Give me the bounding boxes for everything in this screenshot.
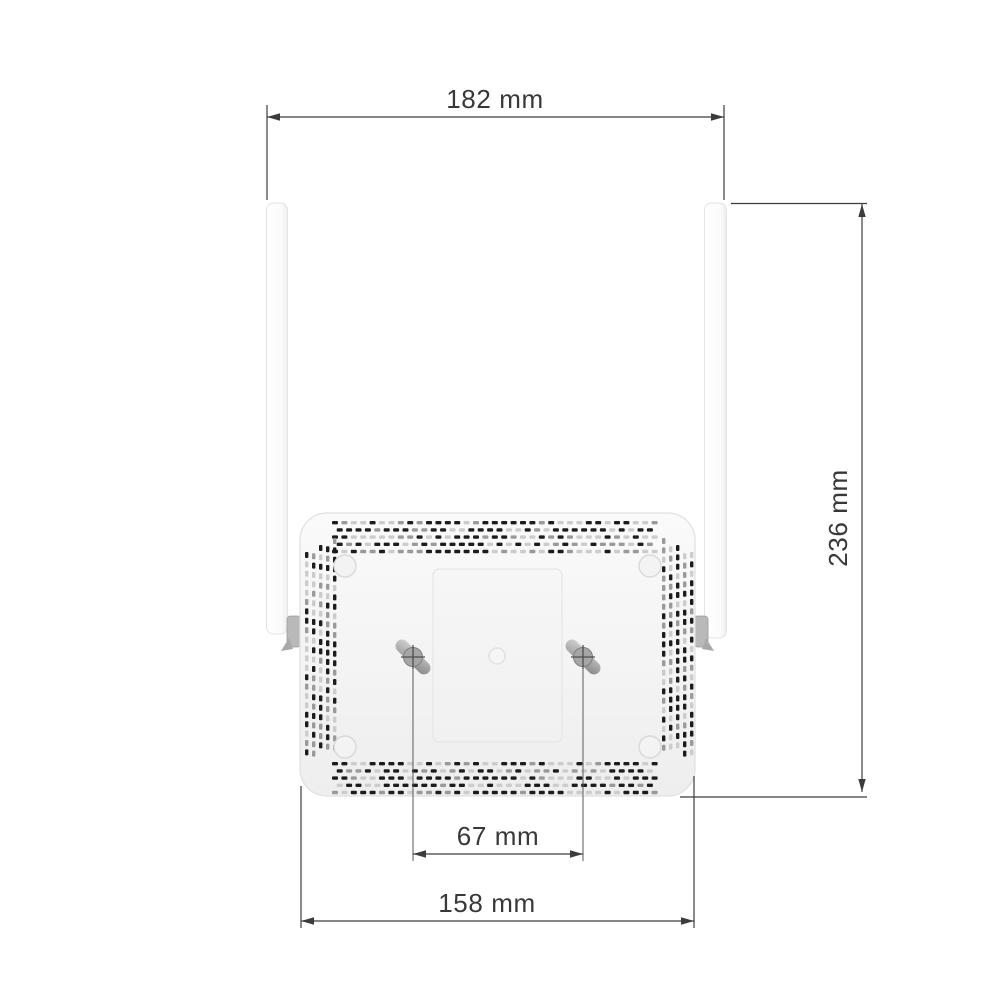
vent-dash bbox=[450, 528, 456, 531]
vent-dash bbox=[487, 528, 493, 531]
vent-dash bbox=[333, 660, 336, 666]
vent-dash bbox=[312, 666, 315, 672]
vent-dash bbox=[662, 670, 665, 676]
dim-label-mount-hole-spacing: 67 mm bbox=[457, 821, 539, 851]
vent-dash bbox=[326, 621, 329, 627]
right-antenna bbox=[705, 203, 727, 638]
vent-dash bbox=[482, 521, 488, 524]
vent-dash bbox=[586, 791, 592, 794]
vent-dash bbox=[326, 659, 329, 665]
vent-dash bbox=[506, 784, 512, 787]
vent-dash bbox=[333, 707, 336, 713]
vent-dash bbox=[647, 784, 653, 787]
vent-dash bbox=[662, 585, 665, 591]
vent-dash bbox=[572, 769, 578, 772]
vent-dash bbox=[683, 610, 686, 616]
vent-dash bbox=[341, 762, 347, 765]
vent-dash bbox=[319, 648, 322, 654]
arrowhead-left bbox=[267, 113, 280, 120]
vent-dash bbox=[642, 550, 648, 553]
vent-dash bbox=[591, 543, 597, 546]
vent-dash bbox=[662, 547, 665, 553]
vent-dash bbox=[440, 528, 446, 531]
vent-dash bbox=[642, 791, 648, 794]
vent-dash bbox=[576, 791, 582, 794]
vent-dash bbox=[690, 580, 693, 586]
vent-dash bbox=[305, 712, 308, 718]
vent-dash bbox=[305, 731, 308, 737]
vent-dash bbox=[633, 762, 639, 765]
vent-dash bbox=[605, 535, 611, 538]
vent-dash bbox=[426, 535, 432, 538]
vent-dash bbox=[333, 670, 336, 676]
vent-dash bbox=[511, 521, 517, 524]
vent-dash bbox=[690, 702, 693, 708]
vent-dash bbox=[515, 543, 521, 546]
vent-dash bbox=[638, 528, 644, 531]
vent-dash bbox=[647, 543, 653, 546]
vent-dash bbox=[473, 535, 479, 538]
dim-label-device-height: 236 mm bbox=[823, 469, 853, 567]
vent-dash bbox=[683, 713, 686, 719]
vent-dash bbox=[690, 684, 693, 690]
vent-dash bbox=[633, 521, 639, 524]
vent-dash bbox=[690, 731, 693, 737]
vent-dash bbox=[628, 769, 634, 772]
vent-dash bbox=[388, 791, 394, 794]
vent-dash bbox=[562, 543, 568, 546]
vent-dash bbox=[305, 702, 308, 708]
vent-dash bbox=[539, 791, 545, 794]
vent-dash bbox=[445, 791, 451, 794]
vent-dash bbox=[576, 521, 582, 524]
vent-dash bbox=[356, 769, 362, 772]
vent-dash bbox=[333, 604, 336, 610]
vent-dash bbox=[567, 535, 573, 538]
vent-dash bbox=[676, 705, 679, 711]
vent-dash bbox=[365, 784, 371, 787]
vent-dash bbox=[426, 521, 432, 524]
vent-dash bbox=[468, 769, 474, 772]
vent-dash bbox=[652, 776, 658, 779]
vent-dash bbox=[642, 535, 648, 538]
vent-dash bbox=[398, 521, 404, 524]
vent-dash bbox=[662, 604, 665, 610]
vent-dash bbox=[333, 576, 336, 582]
vent-dash bbox=[478, 784, 484, 787]
vent-dash bbox=[407, 791, 413, 794]
vent-dash bbox=[609, 528, 615, 531]
vent-dash bbox=[520, 762, 526, 765]
vent-dash bbox=[690, 608, 693, 614]
vent-dash bbox=[388, 535, 394, 538]
vent-dash bbox=[690, 561, 693, 567]
vent-dash bbox=[669, 744, 672, 750]
vent-dash bbox=[501, 521, 507, 524]
vent-dash bbox=[351, 550, 357, 553]
vent-dash bbox=[683, 581, 686, 587]
vent-dash bbox=[595, 550, 601, 553]
vent-dash bbox=[567, 762, 573, 765]
vent-dash bbox=[676, 545, 679, 551]
vent-dash bbox=[633, 791, 639, 794]
vent-dash bbox=[558, 776, 564, 779]
vent-dash bbox=[501, 776, 507, 779]
vent-dash bbox=[683, 751, 686, 757]
vent-dash bbox=[312, 581, 315, 587]
vent-dash bbox=[426, 550, 432, 553]
vent-dash bbox=[393, 784, 399, 787]
vent-dash bbox=[623, 776, 629, 779]
vent-dash bbox=[492, 791, 498, 794]
vent-dash bbox=[445, 550, 451, 553]
vent-dash bbox=[558, 762, 564, 765]
vent-dash bbox=[319, 564, 322, 570]
vent-dash bbox=[370, 550, 376, 553]
vent-dash bbox=[421, 769, 427, 772]
vent-dash bbox=[332, 791, 338, 794]
vent-dash bbox=[669, 706, 672, 712]
vent-dash bbox=[529, 776, 535, 779]
vent-dash bbox=[662, 679, 665, 685]
vent-dash bbox=[326, 574, 329, 580]
vent-dash bbox=[662, 698, 665, 704]
vent-dash bbox=[341, 521, 347, 524]
vent-dash bbox=[662, 660, 665, 666]
vent-dash bbox=[326, 725, 329, 731]
vent-dash bbox=[412, 528, 418, 531]
vent-dash bbox=[305, 665, 308, 671]
vent-dash bbox=[623, 521, 629, 524]
vent-dash bbox=[319, 742, 322, 748]
vent-dash bbox=[326, 565, 329, 571]
vent-dash bbox=[435, 762, 441, 765]
vent-dash bbox=[337, 784, 343, 787]
vent-dash bbox=[326, 678, 329, 684]
vent-dash bbox=[370, 521, 376, 524]
vent-dash bbox=[662, 613, 665, 619]
vent-dash bbox=[669, 631, 672, 637]
vent-dash bbox=[312, 647, 315, 653]
vent-dash bbox=[407, 535, 413, 538]
vent-dash bbox=[459, 784, 465, 787]
vent-dash bbox=[333, 726, 336, 732]
rubber-foot-top-right bbox=[639, 555, 661, 577]
vent-dash bbox=[676, 724, 679, 730]
dim-label-antenna-span: 182 mm bbox=[446, 84, 544, 114]
vent-dash bbox=[351, 791, 357, 794]
vent-dash bbox=[407, 521, 413, 524]
vent-dash bbox=[450, 769, 456, 772]
vent-dash bbox=[567, 521, 573, 524]
vent-dash bbox=[683, 685, 686, 691]
vent-dash bbox=[312, 741, 315, 747]
vent-dash bbox=[426, 776, 432, 779]
vent-dash bbox=[647, 769, 653, 772]
vent-dash bbox=[619, 543, 625, 546]
vent-dash bbox=[333, 538, 336, 544]
vent-dash bbox=[595, 535, 601, 538]
vent-dash bbox=[520, 791, 526, 794]
vent-dash bbox=[319, 601, 322, 607]
vent-dash bbox=[676, 573, 679, 579]
vent-dash bbox=[360, 776, 366, 779]
vent-dash bbox=[581, 769, 587, 772]
vent-dash bbox=[459, 769, 465, 772]
vent-dash bbox=[501, 762, 507, 765]
vent-dash bbox=[652, 550, 658, 553]
vent-dash bbox=[365, 543, 371, 546]
vent-dash bbox=[312, 563, 315, 569]
vent-dash bbox=[511, 776, 517, 779]
vent-dash bbox=[683, 675, 686, 681]
vent-dash bbox=[520, 776, 526, 779]
vent-dash bbox=[379, 521, 385, 524]
vent-dash bbox=[623, 535, 629, 538]
vent-dash bbox=[683, 638, 686, 644]
arrowhead-bottom bbox=[858, 779, 865, 792]
vent-dash bbox=[572, 543, 578, 546]
vent-dash bbox=[305, 693, 308, 699]
vent-dash bbox=[305, 740, 308, 746]
vent-dash bbox=[619, 769, 625, 772]
vent-dash bbox=[473, 521, 479, 524]
vent-dash bbox=[676, 583, 679, 589]
vent-dash bbox=[312, 751, 315, 757]
vent-dash bbox=[548, 535, 554, 538]
vent-dash bbox=[669, 678, 672, 684]
vent-dash bbox=[370, 791, 376, 794]
arrowhead-right bbox=[681, 917, 694, 924]
vent-dash bbox=[326, 584, 329, 590]
vent-dash bbox=[652, 762, 658, 765]
vent-dash bbox=[421, 528, 427, 531]
vent-dash bbox=[398, 535, 404, 538]
vent-dash bbox=[525, 543, 531, 546]
vent-dash bbox=[662, 735, 665, 741]
diagram-canvas: 182 mm 236 mm 67 mm 158 mm bbox=[0, 0, 1000, 1000]
vent-dash bbox=[591, 769, 597, 772]
vent-dash bbox=[529, 791, 535, 794]
vent-dash bbox=[642, 762, 648, 765]
vent-dash bbox=[379, 550, 385, 553]
vent-dash bbox=[638, 784, 644, 787]
vent-dash bbox=[403, 543, 409, 546]
vent-dash bbox=[319, 639, 322, 645]
vent-dash bbox=[487, 784, 493, 787]
vent-dash bbox=[683, 722, 686, 728]
vent-dash bbox=[669, 640, 672, 646]
vent-dash bbox=[370, 762, 376, 765]
vent-dash bbox=[337, 543, 343, 546]
vent-dash bbox=[319, 705, 322, 711]
vent-dash bbox=[356, 784, 362, 787]
vent-dash bbox=[312, 704, 315, 710]
vent-dash bbox=[459, 528, 465, 531]
vent-dash bbox=[454, 521, 460, 524]
vent-dash bbox=[529, 535, 535, 538]
vent-dash bbox=[638, 769, 644, 772]
vent-dash bbox=[515, 769, 521, 772]
vent-dash bbox=[337, 769, 343, 772]
vent-dash bbox=[305, 590, 308, 596]
vent-dash bbox=[647, 528, 653, 531]
vent-dash bbox=[454, 791, 460, 794]
vent-dash bbox=[511, 791, 517, 794]
vent-dash bbox=[360, 521, 366, 524]
vent-dash bbox=[319, 714, 322, 720]
vent-dash bbox=[326, 687, 329, 693]
vent-dash bbox=[683, 666, 686, 672]
vent-dash bbox=[326, 546, 329, 552]
vent-dash bbox=[595, 762, 601, 765]
vent-dash bbox=[374, 528, 380, 531]
vent-dash bbox=[669, 697, 672, 703]
vent-dash bbox=[690, 637, 693, 643]
vent-dash bbox=[683, 619, 686, 625]
vent-dash bbox=[312, 685, 315, 691]
vent-dash bbox=[305, 646, 308, 652]
vent-dash bbox=[333, 613, 336, 619]
vent-dash bbox=[398, 762, 404, 765]
vent-dash bbox=[595, 791, 601, 794]
vent-dash bbox=[548, 791, 554, 794]
vent-dash bbox=[360, 550, 366, 553]
vent-dash bbox=[440, 543, 446, 546]
vent-dash bbox=[435, 776, 441, 779]
vent-dash bbox=[642, 521, 648, 524]
vent-dash bbox=[683, 694, 686, 700]
vent-dash bbox=[417, 776, 423, 779]
arrowhead-top bbox=[858, 204, 865, 217]
vent-dash bbox=[683, 600, 686, 606]
vent-dash bbox=[539, 776, 545, 779]
vent-dash bbox=[407, 762, 413, 765]
vent-dash bbox=[567, 791, 573, 794]
vent-dash bbox=[351, 776, 357, 779]
vent-dash bbox=[553, 543, 559, 546]
vent-dash bbox=[676, 639, 679, 645]
vent-dash bbox=[445, 535, 451, 538]
vent-dash bbox=[669, 668, 672, 674]
vent-dash bbox=[669, 546, 672, 552]
vent-dash bbox=[459, 543, 465, 546]
vent-dash bbox=[326, 744, 329, 750]
vent-dash bbox=[497, 784, 503, 787]
vent-dash bbox=[468, 784, 474, 787]
vent-dash bbox=[662, 688, 665, 694]
vent-dash bbox=[305, 552, 308, 558]
vent-dash bbox=[426, 791, 432, 794]
vent-dash bbox=[600, 784, 606, 787]
vent-dash bbox=[605, 762, 611, 765]
vent-dash bbox=[398, 791, 404, 794]
vent-dash bbox=[326, 556, 329, 562]
vent-dash bbox=[520, 550, 526, 553]
vent-dash bbox=[333, 688, 336, 694]
vent-dash bbox=[374, 769, 380, 772]
vent-dash bbox=[473, 762, 479, 765]
vent-dash bbox=[421, 543, 427, 546]
vent-dash bbox=[478, 528, 484, 531]
vent-dash bbox=[511, 762, 517, 765]
vent-dash bbox=[652, 521, 658, 524]
vent-dash bbox=[305, 608, 308, 614]
vent-dash bbox=[544, 769, 550, 772]
vent-dash bbox=[690, 674, 693, 680]
vent-dash bbox=[351, 521, 357, 524]
vent-dash bbox=[690, 665, 693, 671]
vent-dash bbox=[669, 556, 672, 562]
vent-dash bbox=[515, 528, 521, 531]
dimension-mount-hole-spacing: 67 mm bbox=[413, 821, 583, 858]
vent-dash bbox=[614, 762, 620, 765]
vent-dash bbox=[445, 521, 451, 524]
vent-dash bbox=[690, 590, 693, 596]
vent-dash bbox=[558, 521, 564, 524]
vent-dash bbox=[669, 621, 672, 627]
vent-dash bbox=[312, 713, 315, 719]
vent-dash bbox=[333, 698, 336, 704]
vent-dash bbox=[417, 762, 423, 765]
vent-dash bbox=[576, 776, 582, 779]
vent-dash bbox=[548, 521, 554, 524]
vent-dash bbox=[683, 657, 686, 663]
vent-dash bbox=[676, 695, 679, 701]
vent-dash bbox=[312, 638, 315, 644]
vent-dash bbox=[384, 543, 390, 546]
vent-dash bbox=[487, 769, 493, 772]
vent-dash bbox=[332, 776, 338, 779]
vent-dash bbox=[539, 550, 545, 553]
vent-dash bbox=[360, 791, 366, 794]
vent-dash bbox=[586, 550, 592, 553]
vent-dash bbox=[683, 628, 686, 634]
vent-dash bbox=[412, 543, 418, 546]
vent-dash bbox=[662, 557, 665, 563]
vent-dash bbox=[683, 591, 686, 597]
vent-dash bbox=[398, 550, 404, 553]
vent-dash bbox=[333, 641, 336, 647]
vent-dash bbox=[351, 762, 357, 765]
left-antenna bbox=[267, 203, 288, 634]
vent-dash bbox=[669, 565, 672, 571]
vent-dash bbox=[690, 712, 693, 718]
vent-dash bbox=[539, 762, 545, 765]
vent-dash bbox=[558, 535, 564, 538]
vent-dash bbox=[341, 776, 347, 779]
vent-dash bbox=[326, 650, 329, 656]
vent-dash bbox=[562, 784, 568, 787]
vent-dash bbox=[319, 677, 322, 683]
vent-dash bbox=[464, 550, 470, 553]
vent-dash bbox=[690, 646, 693, 652]
vent-dash bbox=[581, 784, 587, 787]
vent-dash bbox=[370, 535, 376, 538]
vent-dash bbox=[567, 776, 573, 779]
vent-dash bbox=[501, 791, 507, 794]
vent-dash bbox=[690, 693, 693, 699]
vent-dash bbox=[669, 659, 672, 665]
vent-dash bbox=[326, 668, 329, 674]
vent-dash bbox=[431, 769, 437, 772]
vent-dash bbox=[341, 535, 347, 538]
vent-dash bbox=[544, 528, 550, 531]
vent-dash bbox=[305, 749, 308, 755]
vent-dash bbox=[539, 521, 545, 524]
vent-dash bbox=[669, 612, 672, 618]
vent-dash bbox=[662, 538, 665, 544]
